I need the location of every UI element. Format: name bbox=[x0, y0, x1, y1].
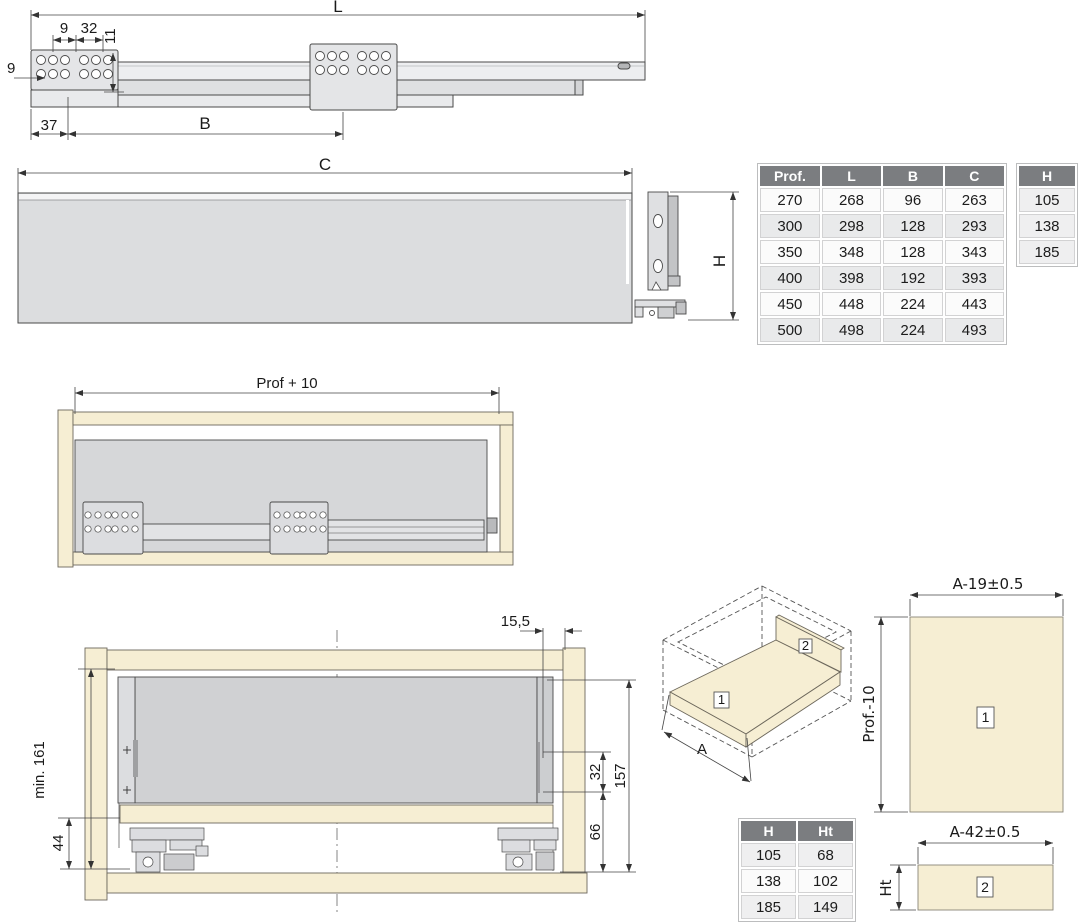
part-label-1: 1 bbox=[982, 709, 990, 725]
table-row: 350348128343 bbox=[760, 240, 1004, 264]
cell: 500 bbox=[760, 318, 820, 342]
col-header-h: H bbox=[1019, 166, 1075, 186]
cell: 224 bbox=[883, 318, 942, 342]
dim-label-H: H bbox=[710, 255, 729, 267]
cell: 293 bbox=[945, 214, 1004, 238]
cell: 443 bbox=[945, 292, 1004, 316]
drawer-slide-assembly bbox=[75, 440, 497, 554]
cell: 185 bbox=[1019, 240, 1075, 264]
drawer-assembly bbox=[118, 677, 558, 872]
drawer-back-panel bbox=[135, 677, 537, 803]
dim-label-height-2: Ht bbox=[877, 879, 895, 896]
table-row: 450448224443 bbox=[760, 292, 1004, 316]
cell: 192 bbox=[883, 266, 942, 290]
cell: 128 bbox=[883, 214, 942, 238]
cell: 398 bbox=[822, 266, 881, 290]
cell: 102 bbox=[798, 869, 853, 893]
cell: 498 bbox=[822, 318, 881, 342]
cell: 393 bbox=[945, 266, 1004, 290]
dim-label-37: 37 bbox=[41, 117, 58, 134]
cell: 298 bbox=[822, 214, 881, 238]
left-runner-mechanism bbox=[130, 828, 208, 872]
table-row: 500498224493 bbox=[760, 318, 1004, 342]
back-bracket-profile-drawing: H bbox=[628, 182, 753, 327]
table-row: 300298128293 bbox=[760, 214, 1004, 238]
dim-label-9-left: 9 bbox=[7, 60, 15, 77]
part-label-2: 2 bbox=[802, 638, 809, 653]
cell: 105 bbox=[1019, 188, 1075, 212]
dim-label-min161: min. 161 bbox=[31, 741, 48, 799]
bracket-shape bbox=[635, 192, 686, 318]
right-runner-mechanism bbox=[498, 828, 558, 870]
col-header-l: L bbox=[822, 166, 881, 186]
col-header-h: H bbox=[741, 821, 796, 841]
table-row: 185149 bbox=[741, 895, 853, 919]
cell: 68 bbox=[798, 843, 853, 867]
slide-side-view-drawing: L 9 32 11 9 37 B bbox=[0, 0, 660, 148]
table-row: 105 bbox=[1019, 188, 1075, 212]
col-header-b: B bbox=[883, 166, 942, 186]
isometric-drawer-drawing: 1 2 A bbox=[640, 568, 875, 818]
table-row: 138 bbox=[1019, 214, 1075, 238]
back-panel-cut-drawing: A-42±0.5 Ht 2 bbox=[860, 822, 1080, 918]
dim-label-66: 66 bbox=[587, 824, 604, 841]
cell: 400 bbox=[760, 266, 820, 290]
cell: 128 bbox=[883, 240, 942, 264]
table-row: 27026896263 bbox=[760, 188, 1004, 212]
dim-label-155: 15,5 bbox=[501, 613, 530, 630]
cell: 105 bbox=[741, 843, 796, 867]
part-label-2: 2 bbox=[981, 879, 989, 895]
cell: 138 bbox=[1019, 214, 1075, 238]
dim-label-32: 32 bbox=[81, 20, 98, 37]
height-total-table-wrap: H Ht 10568 138102 185149 bbox=[738, 818, 856, 922]
dim-label-width-1: A-19±0.5 bbox=[953, 575, 1024, 593]
table-header-row: H Ht bbox=[741, 821, 853, 841]
dim-label-prof10: Prof + 10 bbox=[256, 375, 317, 392]
cell: 343 bbox=[945, 240, 1004, 264]
cell: 448 bbox=[822, 292, 881, 316]
col-header-prof: Prof. bbox=[760, 166, 820, 186]
cell: 224 bbox=[883, 292, 942, 316]
cell: 350 bbox=[760, 240, 820, 264]
dim-label-B: B bbox=[199, 114, 210, 133]
front-section-view-drawing: min. 161 44 15,5 32 66 157 bbox=[20, 600, 660, 918]
cell: 493 bbox=[945, 318, 1004, 342]
dim-label-157: 157 bbox=[612, 763, 629, 788]
table-row: 138102 bbox=[741, 869, 853, 893]
dim-label-C: C bbox=[319, 158, 331, 174]
dimensions-table-wrap: Prof. L B C 27026896263 300298128293 350… bbox=[757, 163, 1007, 345]
dim-label-32: 32 bbox=[587, 764, 604, 781]
cell: 450 bbox=[760, 292, 820, 316]
slide-rail-assembly bbox=[31, 44, 645, 110]
dim-label-9-top: 9 bbox=[60, 20, 68, 37]
dim-label-width-2: A-42±0.5 bbox=[950, 823, 1021, 841]
cell: 96 bbox=[883, 188, 942, 212]
table-header-row: H bbox=[1019, 166, 1075, 186]
rail-end-slot bbox=[618, 63, 630, 69]
height-table: H 105 138 185 bbox=[1016, 163, 1078, 267]
cell: 268 bbox=[822, 188, 881, 212]
side-panel bbox=[18, 193, 632, 323]
panel-top-strip bbox=[19, 194, 631, 200]
table-header-row: Prof. L B C bbox=[760, 166, 1004, 186]
cell: 348 bbox=[822, 240, 881, 264]
drawer-bottom bbox=[120, 805, 553, 823]
dim-label-depth-1: Prof.-10 bbox=[860, 685, 878, 742]
front-mounting-plate bbox=[31, 50, 118, 90]
cell: 185 bbox=[741, 895, 796, 919]
cabinet-plan-view-drawing: Prof + 10 bbox=[50, 372, 525, 580]
bracket-hole bbox=[654, 215, 663, 228]
dim-label-L: L bbox=[333, 0, 342, 16]
cell: 270 bbox=[760, 188, 820, 212]
col-header-c: C bbox=[945, 166, 1004, 186]
bottom-panel-cut-drawing: A-19±0.5 Prof.-10 1 bbox=[860, 572, 1080, 818]
bracket-hole bbox=[654, 260, 663, 273]
cell: 149 bbox=[798, 895, 853, 919]
part-label-1: 1 bbox=[718, 692, 725, 707]
table-row: 400398192393 bbox=[760, 266, 1004, 290]
height-total-table: H Ht 10568 138102 185149 bbox=[738, 818, 856, 922]
height-table-wrap: H 105 138 185 bbox=[1016, 163, 1078, 267]
table-row: 185 bbox=[1019, 240, 1075, 264]
dim-label-11: 11 bbox=[102, 28, 119, 44]
dim-label-44: 44 bbox=[50, 835, 67, 852]
slide-coupling bbox=[487, 518, 497, 533]
cell: 300 bbox=[760, 214, 820, 238]
side-panel-c-drawing: C bbox=[10, 158, 655, 333]
drawer-panels bbox=[670, 615, 844, 747]
table-row: 10568 bbox=[741, 843, 853, 867]
cell: 263 bbox=[945, 188, 1004, 212]
dimensions-table: Prof. L B C 27026896263 300298128293 350… bbox=[757, 163, 1007, 345]
cell: 138 bbox=[741, 869, 796, 893]
left-back-bracket bbox=[118, 677, 135, 803]
col-header-ht: Ht bbox=[798, 821, 853, 841]
dim-label-A: A bbox=[697, 741, 707, 758]
